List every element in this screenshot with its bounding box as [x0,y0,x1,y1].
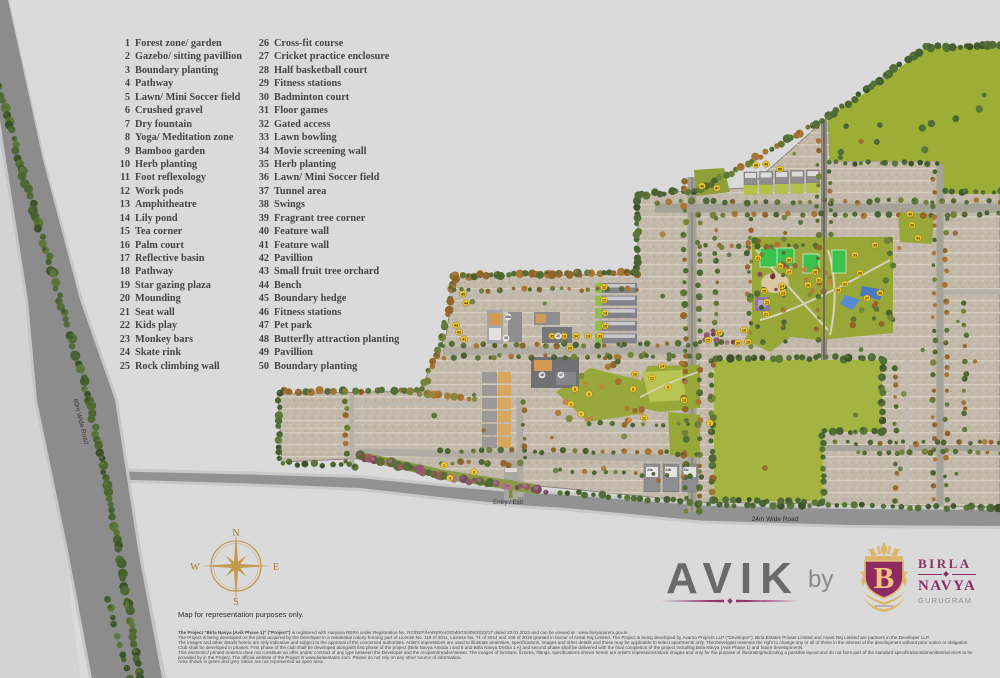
svg-text:50: 50 [778,167,782,171]
svg-text:26: 26 [504,336,508,340]
svg-text:40: 40 [908,212,912,216]
svg-text:43: 43 [454,323,458,327]
svg-text:1: 1 [709,421,711,425]
svg-text:32: 32 [843,282,847,286]
svg-text:16: 16 [540,373,544,377]
svg-text:16: 16 [633,372,637,376]
svg-text:8: 8 [632,387,634,391]
svg-text:32: 32 [817,278,821,282]
svg-text:28: 28 [813,270,817,274]
svg-text:12: 12 [602,298,606,302]
svg-text:22: 22 [765,300,769,304]
svg-text:39: 39 [910,223,914,227]
svg-text:7: 7 [580,412,582,416]
svg-text:11: 11 [602,285,606,289]
svg-text:13: 13 [682,398,686,402]
svg-text:41: 41 [462,337,466,341]
svg-text:2: 2 [473,470,475,474]
svg-text:Entry / Exit: Entry / Exit [493,499,523,506]
svg-text:24m Wide Road: 24m Wide Road [752,516,799,523]
svg-text:1: 1 [443,463,445,467]
svg-text:24b: 24b [665,468,671,472]
svg-text:17: 17 [559,373,563,377]
svg-text:12: 12 [650,376,654,380]
svg-text:N: N [232,528,239,539]
svg-text:43: 43 [916,236,920,240]
svg-text:S: S [233,597,239,608]
svg-text:49: 49 [764,162,768,166]
svg-text:26a: 26a [505,315,511,319]
svg-text:25: 25 [762,289,766,293]
svg-text:19: 19 [746,340,750,344]
svg-text:42: 42 [457,330,461,334]
svg-text:3: 3 [449,476,451,480]
svg-text:10: 10 [556,334,560,338]
svg-text:18: 18 [742,328,746,332]
svg-text:23: 23 [781,291,785,295]
svg-text:15: 15 [706,338,710,342]
svg-text:18: 18 [562,334,566,338]
svg-text:9: 9 [667,385,669,389]
svg-text:24c: 24c [683,468,689,472]
svg-text:35: 35 [550,334,554,338]
svg-text:37: 37 [865,296,869,300]
svg-text:35: 35 [873,243,877,247]
svg-text:15: 15 [603,324,607,328]
svg-text:8: 8 [574,387,576,391]
svg-text:38: 38 [878,291,882,295]
svg-text:30: 30 [787,258,791,262]
svg-text:31: 31 [756,256,760,260]
svg-text:36: 36 [858,271,862,275]
svg-text:19: 19 [586,334,590,338]
svg-text:11: 11 [642,416,646,420]
svg-text:B: B [874,560,895,595]
svg-text:6: 6 [570,402,572,406]
svg-text:47: 47 [715,186,719,190]
svg-text:26: 26 [806,283,810,287]
svg-text:21: 21 [764,312,768,316]
svg-text:20: 20 [568,346,572,350]
svg-text:27: 27 [787,270,791,274]
svg-text:24a: 24a [647,468,653,472]
svg-text:46: 46 [700,184,704,188]
svg-text:E: E [273,562,279,573]
svg-text:17: 17 [717,331,721,335]
svg-text:45: 45 [461,292,465,296]
svg-text:9: 9 [588,392,590,396]
svg-text:48: 48 [754,163,758,167]
svg-text:33: 33 [853,253,857,257]
svg-text:W: W [190,562,200,573]
svg-text:20: 20 [736,341,740,345]
svg-text:29: 29 [778,264,782,268]
svg-text:33: 33 [598,334,602,338]
